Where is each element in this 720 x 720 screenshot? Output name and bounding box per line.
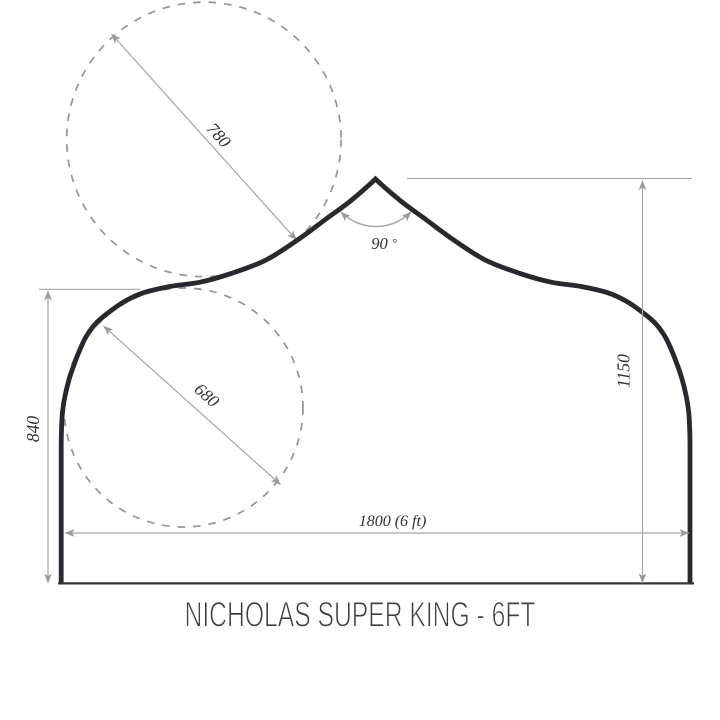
svg-text:1150: 1150 <box>614 354 634 388</box>
svg-text:840: 840 <box>23 416 43 443</box>
svg-text:1800 (6 ft): 1800 (6 ft) <box>359 513 427 530</box>
svg-text:NICHOLAS SUPER KING - 6FT: NICHOLAS SUPER KING - 6FT <box>185 596 536 635</box>
